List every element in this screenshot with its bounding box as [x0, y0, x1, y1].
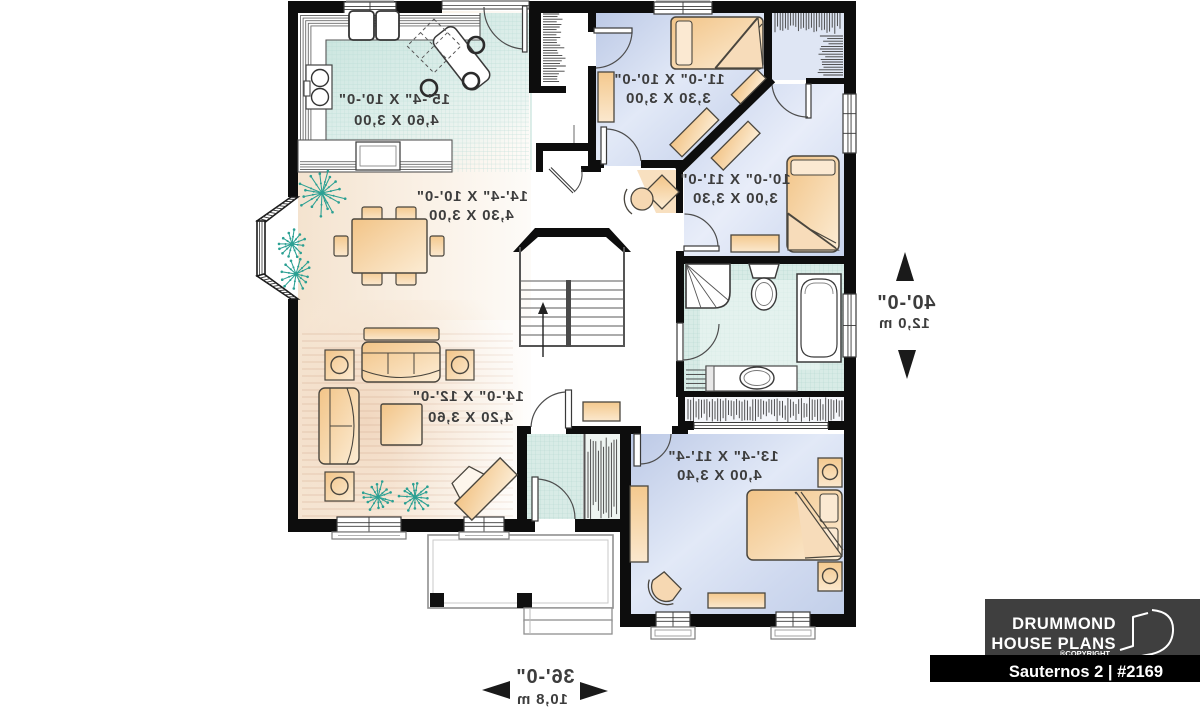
svg-text:DRUMMOND: DRUMMOND	[1012, 615, 1116, 633]
svg-text:4,30 X 3,00: 4,30 X 3,00	[428, 207, 514, 224]
svg-text:4,00 X 3,40: 4,00 X 3,40	[676, 467, 762, 484]
svg-text:4,20 X 3,60: 4,20 X 3,60	[427, 409, 513, 426]
svg-text:40'-0": 40'-0"	[876, 292, 935, 314]
svg-text:14'-4" X 10'-0": 14'-4" X 10'-0"	[416, 188, 528, 205]
svg-text:10,8 m: 10,8 m	[516, 691, 568, 708]
svg-text:12,0 m: 12,0 m	[878, 315, 930, 332]
svg-text:13'-4" X 11'-4": 13'-4" X 11'-4"	[668, 448, 779, 465]
svg-text:3,30 X 3,00: 3,30 X 3,00	[625, 90, 711, 107]
svg-text:4,60 X 3,00: 4,60 X 3,00	[353, 112, 439, 129]
svg-text:36'-0": 36'-0"	[515, 666, 574, 688]
svg-text:11'-0" X 10'-0": 11'-0" X 10'-0"	[614, 71, 725, 88]
svg-text:15'-4" X 10'-0": 15'-4" X 10'-0"	[338, 91, 450, 108]
svg-text:14'-0" X 12'-0": 14'-0" X 12'-0"	[412, 388, 524, 405]
svg-text:3,00 X 3,30: 3,00 X 3,30	[692, 190, 778, 207]
svg-text:10'-0" X 11'-0": 10'-0" X 11'-0"	[680, 171, 791, 188]
svg-text:Sauternos 2 | #2169: Sauternos 2 | #2169	[1009, 663, 1163, 681]
